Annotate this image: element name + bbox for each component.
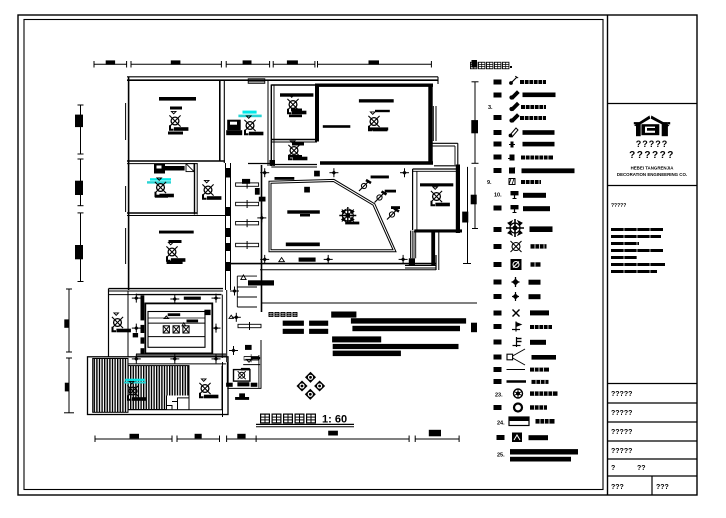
svg-text:??????: ?????? — [629, 150, 675, 161]
svg-text:9.: 9. — [487, 180, 492, 186]
svg-text:?????: ????? — [611, 448, 632, 455]
svg-text:?????: ????? — [611, 410, 632, 417]
svg-text:25.: 25. — [497, 453, 505, 459]
svg-text:???: ??? — [611, 484, 624, 491]
svg-text:3.: 3. — [488, 105, 493, 111]
svg-text:?????: ????? — [611, 391, 632, 398]
svg-text:23.: 23. — [495, 393, 503, 399]
svg-text:??: ?? — [637, 465, 646, 472]
svg-text:?????: ????? — [611, 429, 632, 436]
svg-text:?????: ????? — [636, 139, 669, 149]
svg-text:1: 60: 1: 60 — [322, 414, 347, 426]
svg-text:10.: 10. — [494, 193, 502, 199]
svg-text:HEBEI TANGRENJIA: HEBEI TANGRENJIA — [631, 166, 675, 171]
svg-text:24.: 24. — [497, 421, 505, 427]
svg-text:DECORATION ENGINEERING CO.: DECORATION ENGINEERING CO. — [617, 172, 687, 177]
svg-text:?: ? — [611, 465, 615, 472]
svg-text:???: ??? — [656, 484, 669, 491]
svg-text:?????: ????? — [611, 203, 626, 209]
